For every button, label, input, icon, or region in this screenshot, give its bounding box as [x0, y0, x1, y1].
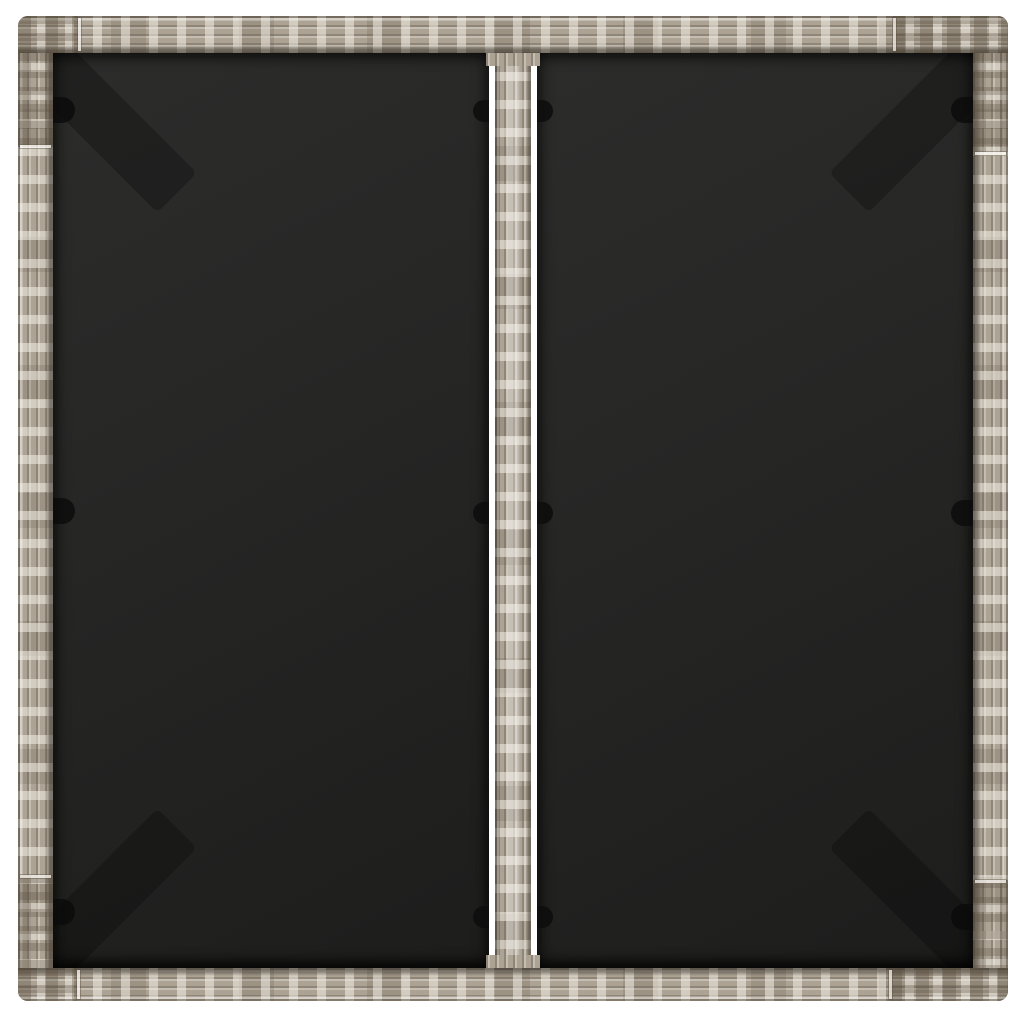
strip-connector-bottom [486, 955, 540, 968]
center-rattan-strip [495, 53, 531, 968]
glass-panel-right [537, 53, 973, 968]
frame-seam [975, 880, 1006, 883]
rattan-rail-left [18, 16, 53, 1001]
rattan-rail-top [18, 16, 1008, 53]
product-photo [0, 0, 1024, 1024]
table-top [18, 16, 1008, 1001]
glass-panel-left [53, 53, 489, 968]
strip-connector-top [486, 53, 540, 66]
glass-clip-right-middle [951, 500, 973, 526]
glass-clip-right-top [951, 97, 973, 123]
corner-bracket-top-right [829, 53, 973, 212]
rattan-rail-bottom [18, 968, 1008, 1001]
glass-clip-right-bottom [951, 904, 973, 930]
frame-seam [77, 970, 80, 999]
corner-bracket-top-left [53, 53, 197, 212]
light-gap-right-of-strip [531, 53, 537, 968]
corner-bracket-bottom-right [829, 809, 973, 968]
frame-seam [20, 145, 51, 148]
frame-seam [975, 152, 1006, 155]
corner-bracket-bottom-left [53, 809, 197, 968]
frame-seam [20, 875, 51, 878]
glass-area [53, 53, 973, 968]
frame-seam [889, 970, 892, 999]
frame-seam [893, 18, 896, 51]
frame-seam [78, 18, 81, 51]
rattan-rail-right [973, 16, 1008, 1001]
light-gap-left-of-strip [489, 53, 495, 968]
